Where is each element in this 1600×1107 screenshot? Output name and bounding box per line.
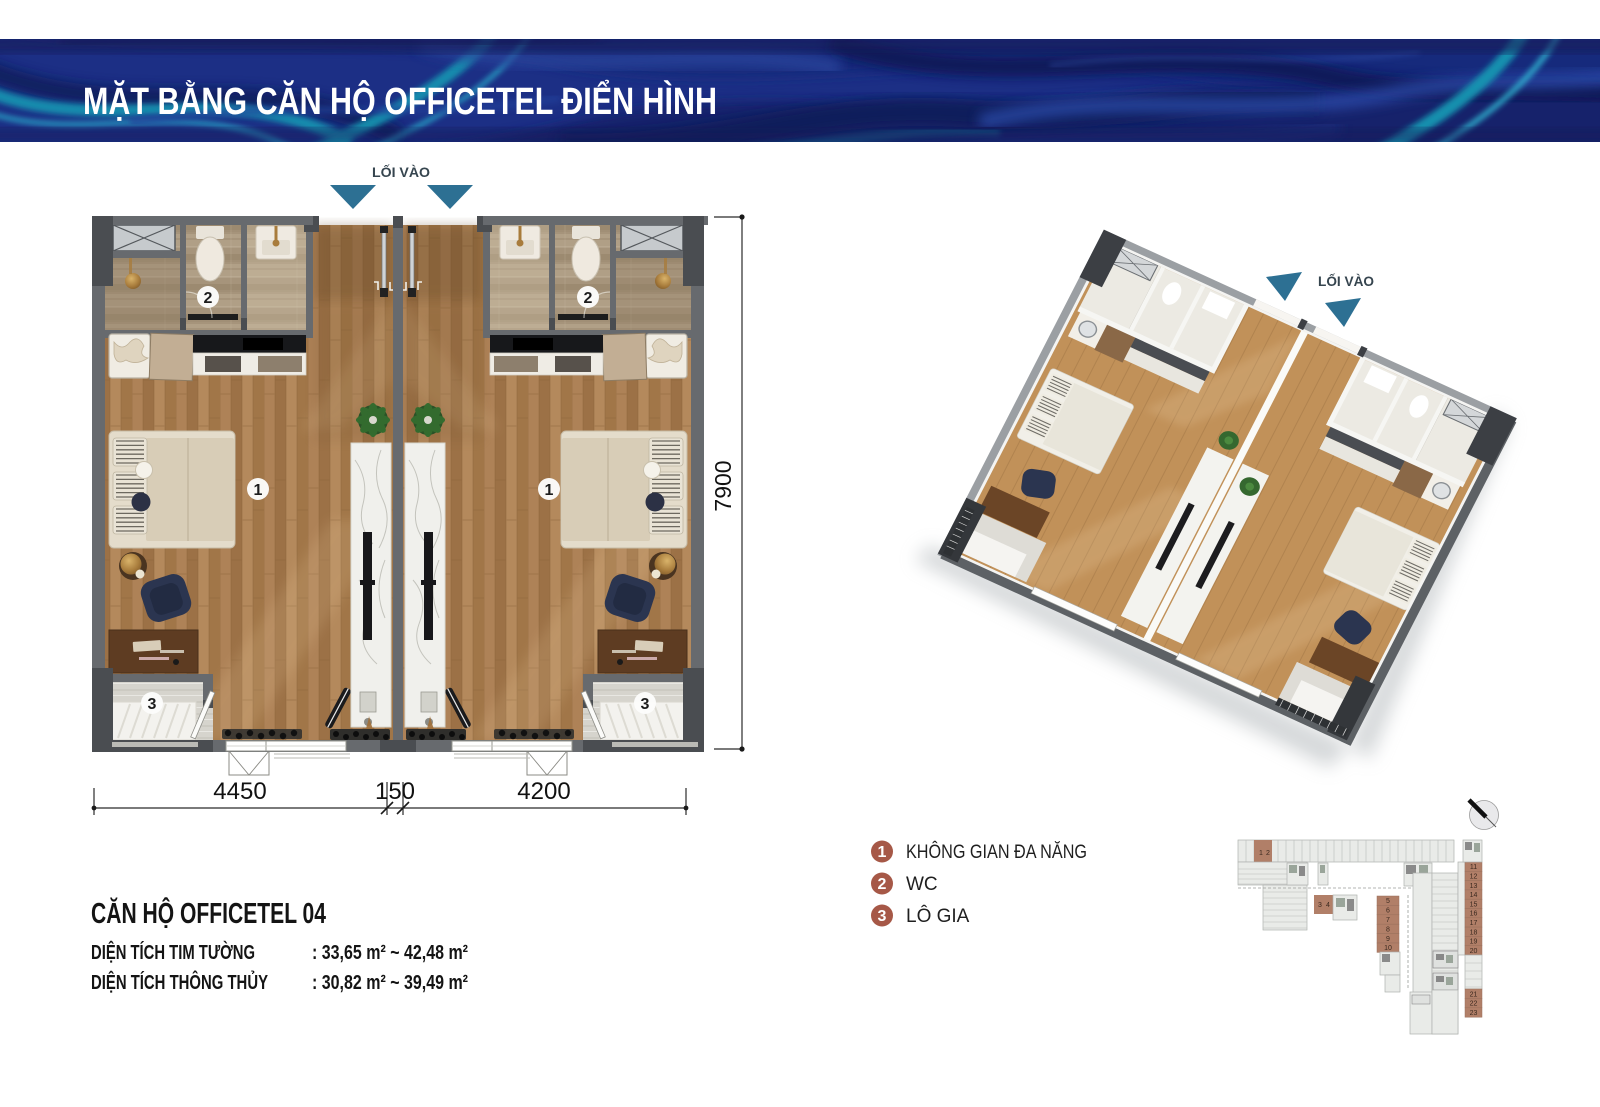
svg-text:1: 1: [545, 482, 554, 499]
svg-text:17: 17: [1470, 920, 1478, 927]
svg-text:16: 16: [1470, 911, 1478, 918]
svg-text:7900: 7900: [710, 460, 736, 511]
svg-text:4: 4: [1326, 902, 1330, 909]
svg-text:3: 3: [641, 696, 650, 713]
svg-text:14: 14: [1470, 892, 1478, 899]
svg-text:KHÔNG GIAN ĐA NĂNG: KHÔNG GIAN ĐA NĂNG: [906, 841, 1087, 863]
svg-text:1: 1: [878, 844, 887, 861]
svg-text:4450: 4450: [213, 778, 266, 805]
svg-text:3: 3: [148, 696, 157, 713]
svg-text:10: 10: [1384, 945, 1392, 952]
svg-text:1: 1: [1259, 850, 1263, 857]
svg-text:9: 9: [1386, 936, 1390, 943]
svg-text:12: 12: [1470, 874, 1478, 881]
svg-text:CĂN HỘ OFFICETEL 04: CĂN HỘ OFFICETEL 04: [91, 896, 326, 930]
svg-text:LÔ GIA: LÔ GIA: [906, 905, 970, 927]
svg-text:8: 8: [1386, 926, 1390, 933]
svg-text:2: 2: [878, 876, 887, 893]
svg-text:MẶT BẰNG CĂN HỘ OFFICETEL ĐIỂN: MẶT BẰNG CĂN HỘ OFFICETEL ĐIỂN HÌNH: [83, 78, 717, 123]
svg-text:: 33,65 m² ~ 42,48 m²: : 33,65 m² ~ 42,48 m²: [312, 942, 468, 964]
svg-text:WC: WC: [906, 874, 938, 895]
svg-text:: 30,82 m² ~ 39,49 m²: : 30,82 m² ~ 39,49 m²: [312, 972, 468, 994]
svg-text:5: 5: [1386, 898, 1390, 905]
svg-text:150: 150: [375, 778, 415, 805]
svg-text:2: 2: [1266, 850, 1270, 857]
svg-text:19: 19: [1470, 939, 1478, 946]
svg-text:11: 11: [1470, 864, 1477, 871]
svg-text:LỐI VÀO: LỐI VÀO: [372, 163, 430, 180]
svg-text:LỐI VÀO: LỐI VÀO: [1318, 272, 1374, 289]
svg-text:22: 22: [1470, 1001, 1478, 1008]
svg-text:1: 1: [254, 482, 263, 499]
svg-text:6: 6: [1386, 908, 1390, 915]
svg-text:20: 20: [1470, 948, 1478, 955]
svg-text:18: 18: [1470, 929, 1478, 936]
svg-text:21: 21: [1470, 991, 1478, 998]
svg-text:3: 3: [878, 908, 887, 925]
svg-text:2: 2: [584, 290, 593, 307]
svg-text:DIỆN TÍCH THÔNG THỦY: DIỆN TÍCH THÔNG THỦY: [91, 970, 268, 994]
svg-text:DIỆN TÍCH TIM TƯỜNG: DIỆN TÍCH TIM TƯỜNG: [91, 940, 255, 964]
svg-text:23: 23: [1470, 1010, 1478, 1017]
svg-text:13: 13: [1470, 883, 1478, 890]
svg-text:2: 2: [204, 290, 213, 307]
svg-text:15: 15: [1470, 901, 1478, 908]
svg-text:3: 3: [1318, 902, 1322, 909]
svg-text:4200: 4200: [517, 778, 570, 805]
svg-text:7: 7: [1386, 917, 1390, 924]
